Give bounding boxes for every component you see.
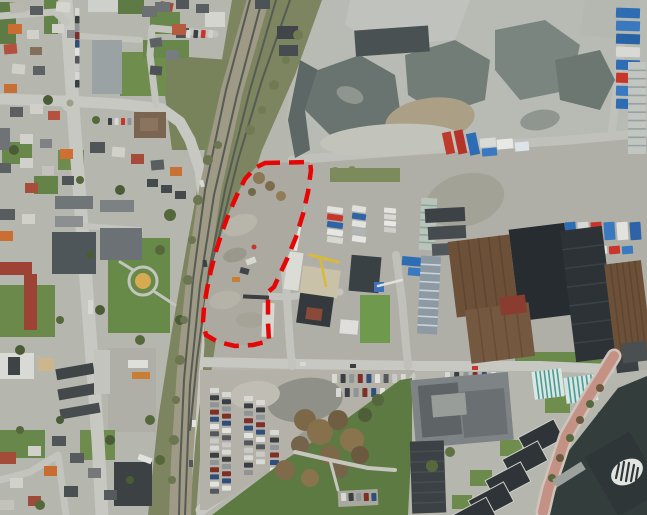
aerial-map-svg xyxy=(0,0,647,515)
aerial-map-image xyxy=(0,0,647,515)
